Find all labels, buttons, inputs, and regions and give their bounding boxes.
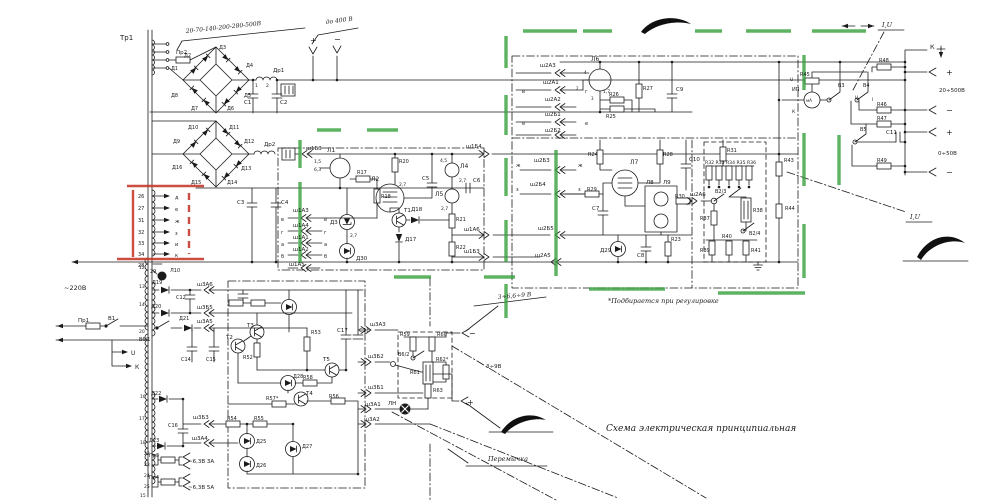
schematic-label: Д9	[173, 139, 180, 145]
schematic-label: К	[792, 109, 796, 115]
schematic-label: С6	[473, 178, 481, 184]
schematic-label: Др1	[273, 68, 284, 74]
schematic-label: Д6	[227, 106, 234, 112]
schematic-label: ш1А5	[289, 262, 305, 268]
schematic-label: R24	[588, 152, 598, 158]
schematic-label: ш2Б3	[534, 158, 550, 164]
schematic-label: *Подбирается при регулировке	[608, 297, 719, 305]
schematic-label: ~6,3В 5А	[188, 485, 214, 491]
schematic-label: Д12	[244, 139, 254, 145]
schematic-label: U	[855, 95, 858, 101]
schematic-label: I,U	[881, 21, 893, 29]
schematic-label: Д11	[229, 125, 239, 131]
schematic-label: R18	[381, 194, 391, 200]
schematic-label: Д23	[149, 438, 159, 444]
schematic-label: 3	[591, 96, 594, 101]
schematic-label: R63	[433, 388, 443, 394]
schematic-label: ш2А1	[543, 80, 559, 86]
schematic-label: ш2Б2	[545, 128, 561, 134]
schematic-label: R55	[254, 416, 264, 422]
schematic-label: R58	[303, 375, 313, 381]
schematic-label: ш3А4	[192, 436, 208, 442]
schematic-label: ш3А6	[197, 282, 213, 288]
schematic-label: Д17	[405, 237, 417, 243]
schematic-label: мА	[806, 98, 812, 103]
schematic-label: С10	[689, 157, 700, 163]
schematic-label: ш1А1	[293, 235, 309, 241]
schematic-label: В1	[108, 316, 115, 322]
schematic-label: 22	[144, 451, 150, 457]
schematic-label: е	[175, 207, 178, 213]
schematic-label: 2,7	[441, 206, 448, 212]
schematic-label: R46	[877, 102, 887, 108]
schematic-label: ~6,3В 3А	[188, 459, 214, 465]
schematic-label: +	[946, 128, 953, 137]
schematic-label: ш1А2	[293, 247, 309, 253]
schematic-label: ж	[516, 163, 521, 169]
schematic-label: 31	[138, 218, 144, 224]
schematic-label: R17	[357, 170, 367, 176]
schematic-label: з	[175, 231, 178, 237]
schematic-label: Схема электрическая принципиальная	[606, 424, 796, 434]
schematic-label: R57*	[266, 396, 279, 402]
schematic-label: Д20	[151, 304, 161, 310]
schematic-label: В5	[860, 127, 867, 133]
schematic-label: 34	[138, 252, 144, 258]
input-fuse-switch	[56, 319, 148, 368]
junction-dots	[182, 61, 842, 476]
schematic-label: В6/2	[398, 352, 409, 358]
schematic-label: Д5	[244, 93, 251, 99]
schematic-label: 20÷500В	[939, 88, 965, 94]
schematic-label: Перемычка	[487, 455, 528, 463]
schematic-label: R27	[643, 86, 653, 92]
schematic-label: R21	[456, 217, 466, 223]
schematic-label: С4	[281, 200, 289, 206]
schematic-label: 4,5	[440, 158, 447, 164]
schematic-label: 20-70-140-200-280-500В	[184, 20, 262, 35]
schematic-label: Д3	[330, 220, 338, 226]
schematic-label: С7	[592, 206, 600, 212]
schematic-label: С17	[337, 328, 348, 334]
schematic-label: Д25	[256, 439, 266, 445]
schematic-label: 2,7	[399, 182, 406, 188]
schematic-label: Д2	[184, 53, 191, 59]
schematic-label: С1	[244, 100, 251, 106]
schematic-label: Д13	[241, 166, 251, 172]
schematic-label: 2,7	[459, 178, 466, 184]
schematic-label: Д29	[600, 248, 612, 254]
schematic-label: С3	[237, 200, 245, 206]
schematic-label: Д22	[151, 391, 161, 397]
schematic-label: ж	[175, 219, 180, 225]
schematic-label: С11	[886, 130, 897, 136]
schematic-label: С15	[206, 357, 216, 363]
schematic-label: R26	[609, 92, 619, 98]
schematic-label: Д7	[191, 106, 198, 112]
schematic-label: R60	[437, 332, 447, 338]
schematic-label: U	[790, 77, 793, 83]
schematic-label: 0÷50В	[938, 151, 957, 157]
schematic-label: R38	[753, 208, 763, 214]
schematic-label: ш1А4	[293, 223, 309, 229]
schematic-label: ш2А2	[545, 97, 561, 103]
schematic-label: 20	[139, 329, 145, 335]
scanned-schematic-page: Схема электрическая принципиальная	[0, 0, 1000, 502]
schematic-label: 13	[139, 284, 145, 290]
schematic-label: −	[334, 35, 341, 44]
schematic-label: Д19	[152, 280, 162, 286]
annotation-lines	[392, 297, 706, 500]
schematic-label: б	[281, 254, 284, 260]
schematic-label: Т2	[225, 335, 233, 341]
schematic-label: С8	[637, 253, 645, 259]
schematic-label: ш2Б1	[545, 112, 561, 118]
schematic-label: Пр4	[149, 475, 159, 481]
schematic-label: I	[872, 97, 873, 103]
schematic-label: С9	[676, 87, 684, 93]
schematic-label: К	[930, 43, 935, 51]
schematic-label: I,U	[909, 213, 921, 221]
schematic-label: +	[467, 398, 474, 407]
schematic-image: Схема электрическая принципиальная	[0, 0, 1000, 502]
schematic-label: д	[175, 195, 179, 201]
schematic-label: Л1	[327, 147, 336, 154]
aux-supply-block	[152, 278, 430, 500]
schematic-label: ш3Б3	[193, 415, 209, 421]
schematic-label: ш3А2	[364, 417, 380, 423]
schematic-label: С12	[176, 295, 186, 301]
schematic-label: Д3	[219, 45, 226, 51]
schematic-label: −	[469, 329, 476, 338]
schematic-label: 3÷9В	[486, 364, 502, 370]
schematic-label: R29	[587, 187, 597, 193]
schematic-label: С14	[181, 357, 191, 363]
schematic-label: 23	[144, 462, 150, 468]
schematic-label: 12	[139, 265, 145, 271]
schematic-label: 2,7	[350, 233, 357, 239]
schematic-label: в	[281, 217, 284, 223]
schematic-label: Т1	[403, 208, 411, 214]
schematic-label: Пр1	[78, 318, 89, 324]
schematic-label: R47	[877, 116, 887, 122]
schematic-label: ш3Б1	[368, 385, 384, 391]
schematic-label: R61	[410, 370, 420, 376]
schematic-label: R31	[727, 148, 737, 154]
schematic-label: з	[516, 187, 519, 193]
schematic-label: С16	[168, 423, 178, 429]
schematic-label: R32 R33 R34 R35 R36	[705, 160, 756, 166]
schematic-label: R43	[784, 158, 794, 164]
schematic-label: 6,3	[314, 167, 321, 173]
schematic-label: С18	[359, 328, 370, 334]
schematic-label: К	[135, 364, 140, 371]
schematic-label: ж	[578, 163, 583, 169]
schematic-label: R44	[785, 206, 795, 212]
schematic-label: Л9	[663, 180, 671, 186]
schematic-label: Д15	[191, 180, 201, 186]
schematic-label: Д26	[256, 463, 266, 469]
metering-section	[782, 24, 968, 261]
schematic-label: R40	[722, 234, 732, 240]
schematic-label: U	[131, 350, 135, 357]
schematic-label: к	[175, 253, 178, 259]
schematic-label: з	[578, 187, 581, 193]
schematic-label: Л6	[591, 56, 600, 63]
schematic-label: Д30	[356, 256, 368, 262]
schematic-label: е	[522, 121, 525, 127]
schematic-label: В2/4	[749, 231, 760, 237]
schematic-label: +	[946, 68, 953, 77]
schematic-label: 24	[144, 473, 150, 479]
red-highlighter-marks	[117, 186, 204, 259]
schematic-label: Д4	[246, 63, 253, 69]
schematic-label: Д10	[188, 125, 198, 131]
schematic-label: В6/1	[139, 337, 150, 343]
schematic-label: ш1А6	[464, 227, 480, 233]
schematic-label: ш3А1	[365, 402, 381, 408]
schematic-label: R41	[751, 248, 761, 254]
schematic-label: е	[585, 121, 588, 127]
schematic-label: Л7	[630, 159, 639, 166]
schematic-label: ш2Б5	[538, 226, 554, 232]
schematic-label: R20	[399, 159, 409, 165]
schematic-label: 4	[584, 70, 587, 75]
schematic-label: Л10	[170, 268, 180, 274]
schematic-label: 16	[140, 394, 146, 400]
schematic-label: ш2А6	[690, 192, 706, 198]
schematic-label: 33	[138, 241, 144, 247]
schematic-label: R28	[663, 152, 673, 158]
schematic-label: 25	[144, 484, 150, 490]
schematic-label: R54	[227, 416, 237, 422]
schematic-label: Т3	[246, 323, 254, 329]
schematic-label: −	[946, 168, 953, 177]
schematic-label: В3	[838, 83, 845, 89]
schematic-label: ш2А5	[535, 253, 551, 259]
schematic-label: Тр1	[119, 34, 133, 42]
schematic-label: R39	[700, 248, 710, 254]
schematic-label: С2	[280, 100, 287, 106]
schematic-label: ш2Б4	[530, 182, 546, 188]
schematic-label: ш1Б3	[306, 146, 322, 152]
schematic-label: R53	[311, 330, 321, 336]
schematic-label: В2/3	[715, 189, 726, 195]
schematic-label: +	[310, 36, 317, 45]
schematic-label: и	[175, 242, 178, 248]
schematic-label: Д14	[227, 180, 237, 186]
schematic-label: ш2А3	[540, 63, 556, 69]
schematic-label: С5	[422, 176, 430, 182]
schematic-label: Л5	[435, 191, 444, 198]
schematic-label: ш3А5	[197, 319, 213, 325]
schematic-label: 1	[255, 83, 258, 89]
series-regulator-block	[278, 148, 692, 270]
schematic-label: 29	[150, 269, 156, 275]
schematic-label: R23	[671, 237, 681, 243]
schematic-label: в	[522, 89, 525, 95]
schematic-label: 18	[140, 440, 146, 446]
schematic-label: Д8	[171, 93, 178, 99]
schematic-label: Л8	[646, 180, 654, 186]
schematic-label: R59	[400, 332, 410, 338]
schematic-label: Д21	[179, 316, 189, 322]
schematic-label: R30	[675, 194, 685, 200]
schematic-label: а	[324, 242, 327, 248]
schematic-label: ш1Б4	[466, 144, 482, 150]
schematic-label: 27	[138, 206, 144, 212]
schematic-label: Т5	[322, 357, 330, 363]
schematic-label: в	[324, 217, 327, 223]
schematic-label: R56	[329, 394, 339, 400]
schematic-label: В4	[863, 83, 870, 89]
schematic-label: Д18	[411, 207, 423, 213]
schematic-label: ~220В	[64, 284, 86, 292]
schematic-label: до 400 В	[325, 16, 353, 26]
schematic-label: R52	[243, 355, 253, 361]
schematic-label: ЛН	[388, 401, 396, 407]
schematic-label: R49	[877, 158, 887, 164]
schematic-label: Д27	[302, 444, 312, 450]
schematic-label: г	[324, 230, 327, 236]
schematic-label: 2	[266, 83, 269, 89]
schematic-label: ш3А3	[370, 322, 386, 328]
schematic-label: R25	[606, 114, 616, 120]
schematic-label: г	[585, 89, 588, 95]
schematic-label: Л4	[460, 163, 469, 170]
schematic-label: R37	[700, 216, 710, 222]
schematic-label: R62*	[436, 357, 449, 363]
schematic-label: 26	[138, 194, 144, 200]
schematic-label: 32	[138, 230, 144, 236]
schematic-label: 15	[140, 493, 146, 499]
schematic-label: Пр3	[149, 453, 159, 459]
schematic-label: б	[324, 254, 327, 260]
schematic-label: R45	[800, 72, 810, 78]
pen-marks	[501, 18, 965, 434]
schematic-label: R48	[879, 58, 889, 64]
schematic-label: а	[281, 242, 284, 248]
schematic-label: 14	[139, 302, 145, 308]
schematic-label: ш1Б3	[464, 249, 480, 255]
schematic-label: 17	[139, 416, 145, 422]
bridge-rectifier-1	[183, 47, 249, 113]
schematic-label: г	[281, 230, 284, 236]
schematic-label: Д28	[293, 374, 303, 380]
external-regulator-box	[391, 329, 470, 415]
schematic-label: −	[946, 106, 953, 115]
schematic-label: Д1	[171, 66, 178, 72]
schematic-label: ш3Б2	[368, 354, 384, 360]
schematic-label: 1,5	[314, 159, 321, 165]
schematic-label: ИП	[792, 87, 800, 93]
schematic-label: Т4	[305, 391, 313, 397]
schematic-label: Л2	[371, 176, 380, 183]
schematic-label: ш1А3	[293, 208, 309, 214]
schematic-label: ш3Б5	[197, 305, 213, 311]
schematic-label: Д16	[172, 165, 182, 171]
schematic-label: Др2	[264, 142, 275, 148]
